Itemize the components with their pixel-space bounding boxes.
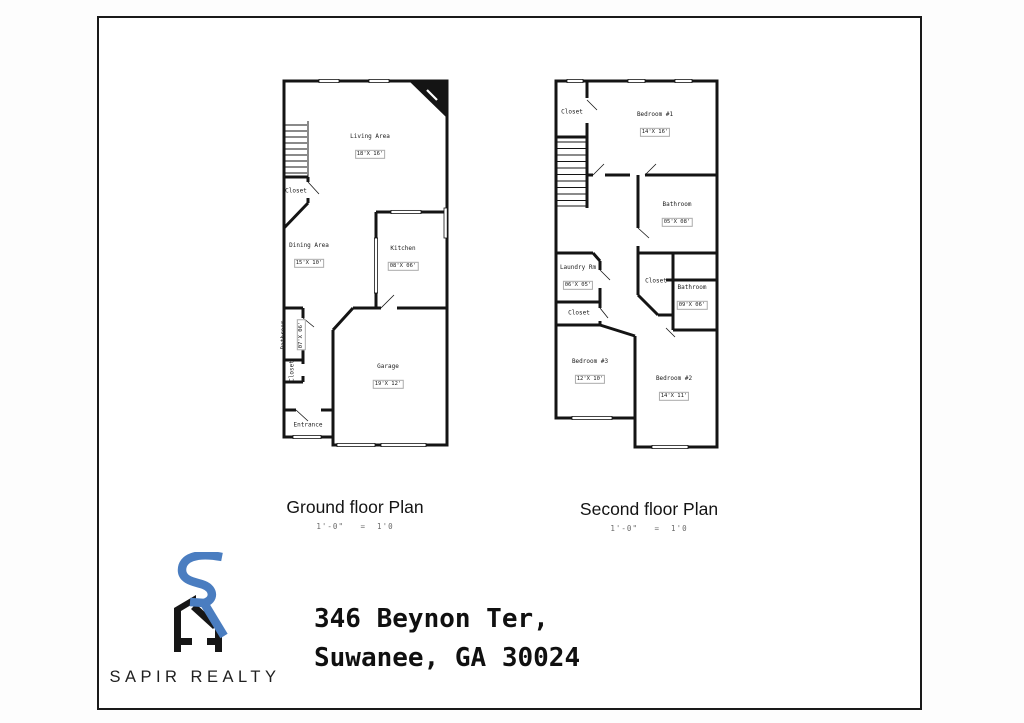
room-label-living-area: Living Area 18'X 16' bbox=[350, 133, 390, 159]
room-label-bathroom-upper: Bathroom 05'X 08' bbox=[662, 201, 693, 227]
logo-text: SAPIR REALTY bbox=[95, 668, 295, 687]
second-plan-title: Second floor Plan bbox=[564, 499, 734, 520]
ground-plan-scale: 1'-0" = 1'0 bbox=[270, 522, 440, 531]
address-line2: Suwanee, GA 30024 bbox=[314, 639, 580, 678]
room-label-dining-area: Dining Area 15'X 10' bbox=[289, 242, 329, 268]
room-label-garage: Garage 19'X 12' bbox=[373, 363, 404, 389]
property-address: 346 Beynon Ter, Suwanee, GA 30024 bbox=[314, 600, 580, 678]
room-label-closet-tl: Closet bbox=[561, 108, 583, 115]
room-label-kitchen: Kitchen 08'X 06' bbox=[388, 245, 419, 271]
corner-cut bbox=[409, 81, 447, 118]
ground-plan-caption: Ground floor Plan 1'-0" = 1'0 bbox=[270, 497, 440, 531]
address-line1: 346 Beynon Ter, bbox=[314, 600, 580, 639]
room-label-closet-1: Closet bbox=[285, 187, 307, 194]
ground-floor-plan: Living Area 18'X 16' Dining Area 15'X 10… bbox=[281, 78, 450, 448]
room-label-bedroom-2: Bedroom #2 14'X 11' bbox=[656, 375, 692, 401]
second-floor-plan: Closet Bedroom #1 14'X 16' Bathroom 05'X… bbox=[553, 78, 720, 452]
room-label-closet-2: Closet bbox=[288, 360, 295, 382]
flyer-page: Living Area 18'X 16' Dining Area 15'X 10… bbox=[0, 0, 1024, 723]
room-label-closet-left: Closet bbox=[568, 309, 590, 316]
room-label-closet-mid: Closet bbox=[645, 277, 667, 284]
ground-plan-title: Ground floor Plan bbox=[270, 497, 440, 518]
sr-house-monogram-icon bbox=[160, 552, 234, 664]
room-label-bedroom-1: Bedroom #1 14'X 16' bbox=[637, 111, 673, 137]
stairs bbox=[285, 121, 308, 177]
room-label-bedroom-3: Bedroom #3 12'X 10' bbox=[572, 358, 608, 384]
second-plan-caption: Second floor Plan 1'-0" = 1'0 bbox=[564, 499, 734, 533]
room-label-bathroom-right: Bathroom 09'X 06' bbox=[677, 284, 708, 310]
stairs bbox=[557, 142, 586, 206]
room-label-bathroom: Bathroom 07'X 06' bbox=[280, 320, 306, 351]
room-label-entrance: Entrance bbox=[294, 421, 323, 428]
room-label-laundry: Laundry Rm 06'X 05' bbox=[560, 264, 596, 290]
second-plan-scale: 1'-0" = 1'0 bbox=[564, 524, 734, 533]
